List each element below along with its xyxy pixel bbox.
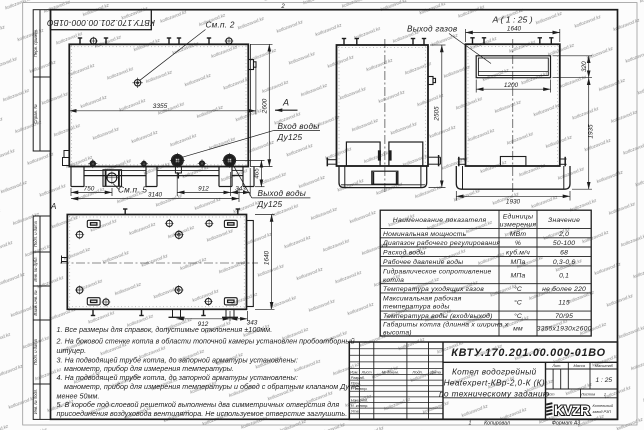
svg-text:KVZR: KVZR <box>554 403 590 418</box>
svg-text:5. В коробе под слоевой решетк: 5. В коробе под слоевой решеткой выполне… <box>57 401 340 409</box>
svg-text:°С: °С <box>514 285 522 293</box>
svg-text:Heatexpert-КВр-2,0-К (К): Heatexpert-КВр-2,0-К (К) <box>444 379 545 388</box>
svg-text:Н. контр.: Н. контр. <box>351 403 369 408</box>
svg-text:Температура воды (вход/выход): Температура воды (вход/выход) <box>383 312 493 320</box>
svg-text:1: 1 <box>604 391 606 396</box>
svg-text:1935: 1935 <box>588 124 595 139</box>
svg-text:2505: 2505 <box>434 106 441 122</box>
svg-text:1930: 1930 <box>506 199 521 206</box>
svg-text:не более 220: не более 220 <box>542 285 586 293</box>
svg-text:4. На подводящей трубе котла,: 4. На подводящей трубе котла, до запорно… <box>57 374 298 382</box>
svg-text:измерения: измерения <box>500 222 537 229</box>
svg-text:Котел водогрейный: Котел водогрейный <box>452 368 537 377</box>
svg-text:0,3-0,6: 0,3-0,6 <box>553 259 576 266</box>
svg-text:70/95: 70/95 <box>555 313 573 320</box>
svg-text:температура воды: температура воды <box>383 303 450 311</box>
svg-text:МПа: МПа <box>511 259 526 266</box>
svg-text:КВТУ.170.201.00.000-01ВО: КВТУ.170.201.00.000-01ВО <box>46 18 155 28</box>
svg-text:См.п. 2: См.п. 2 <box>206 21 235 30</box>
svg-text:манометр, прибор для измерения: манометр, прибор для измерения температу… <box>64 365 234 373</box>
svg-text:Разраб.: Разраб. <box>351 375 365 380</box>
svg-text:Масштаб: Масштаб <box>595 363 614 368</box>
svg-text:2,0: 2,0 <box>558 231 569 238</box>
svg-text:Инв. № подл.: Инв. № подл. <box>33 389 38 414</box>
svg-text:2600: 2600 <box>262 98 269 114</box>
svg-text:манометр, прибор для измерения: манометр, прибор для измерения температу… <box>64 383 359 391</box>
svg-text:Температура уходящих газов: Температура уходящих газов <box>383 285 484 293</box>
svg-text:Подп. и дата: Подп. и дата <box>33 220 38 246</box>
svg-text:Расход воды: Расход воды <box>383 248 425 256</box>
svg-text:0,1: 0,1 <box>559 273 569 280</box>
svg-text:Выход газов: Выход газов <box>407 25 458 34</box>
svg-text:Габариты котла (длинна х ширин: Габариты котла (длинна х ширина х <box>383 321 509 329</box>
svg-text:%: % <box>515 240 521 247</box>
svg-text:Котельный: Котельный <box>593 404 615 408</box>
svg-text:Справ. №: Справ. № <box>33 104 38 124</box>
svg-text:68: 68 <box>560 249 568 256</box>
svg-text:1640: 1640 <box>507 26 522 33</box>
svg-text:Перв. примен.: Перв. примен. <box>33 29 38 58</box>
svg-text:котла: котла <box>383 277 404 284</box>
svg-text:менее 50мм.: менее 50мм. <box>57 392 100 400</box>
svg-text:МВт: МВт <box>510 231 527 238</box>
svg-text:А: А <box>282 98 289 108</box>
svg-text:Взам. инв. №: Взам. инв. № <box>33 290 38 316</box>
svg-text:Копировал: Копировал <box>484 421 510 427</box>
svg-text:1. Все размеры для справок, до: 1. Все размеры для справок, допустимые о… <box>57 326 273 334</box>
svg-text:присоединения воздуховода вент: присоединения воздуховода вентилятора. Н… <box>57 410 348 418</box>
svg-text:2: 2 <box>280 4 285 10</box>
svg-text:Утв.: Утв. <box>351 409 360 414</box>
svg-text:Ду125: Ду125 <box>257 200 283 209</box>
svg-text:завод РЗП: завод РЗП <box>592 410 612 414</box>
svg-text:Диапазон рабочего регулировани: Диапазон рабочего регулирования <box>382 239 500 247</box>
svg-text:°С: °С <box>514 312 522 320</box>
svg-text:Формат А3: Формат А3 <box>552 421 580 427</box>
svg-text:°С: °С <box>514 299 522 307</box>
svg-text:Листов: Листов <box>580 391 595 396</box>
svg-text:Ду125: Ду125 <box>277 133 303 142</box>
svg-text:мм: мм <box>513 326 523 333</box>
svg-text:высота): высота) <box>383 330 412 337</box>
svg-text:3. На подводящей трубе котла,: 3. На подводящей трубе котла, до запорно… <box>57 357 298 365</box>
svg-text:Номинальная мощность: Номинальная мощность <box>383 231 467 238</box>
svg-text:Лист: Лист <box>543 391 555 396</box>
svg-text:А ( 1 : 25 ): А ( 1 : 25 ) <box>491 15 532 25</box>
svg-text:465: 465 <box>253 168 260 179</box>
svg-text:Изм.: Изм. <box>350 369 358 374</box>
svg-text:3140: 3140 <box>148 191 163 198</box>
svg-text:по техническому заданию: по техническому заданию <box>439 390 549 399</box>
svg-text:Масса: Масса <box>573 363 585 368</box>
svg-text:Наименование показателя: Наименование показателя <box>393 217 487 224</box>
svg-text:2. На боковой стенке котла в о: 2. На боковой стенке котла в области топ… <box>56 338 355 346</box>
svg-text:Подп.: Подп. <box>413 369 423 374</box>
svg-text:750: 750 <box>84 185 95 192</box>
svg-text:Выход воды: Выход воды <box>258 189 307 198</box>
svg-text:912: 912 <box>198 185 209 192</box>
svg-text:Инв. № дубл.: Инв. № дубл. <box>33 256 38 281</box>
svg-text:1640: 1640 <box>263 250 270 265</box>
svg-text:Нач. отд.: Нач. отд. <box>351 397 368 402</box>
svg-text:КВТУ.170.201.00.000-01ВО: КВТУ.170.201.00.000-01ВО <box>451 347 605 359</box>
svg-text:1: 1 <box>469 421 472 427</box>
svg-text:115: 115 <box>558 300 569 307</box>
svg-text:Значение: Значение <box>548 217 580 224</box>
svg-text:Гидравлическое сопротивление: Гидравлическое сопротивление <box>383 267 491 275</box>
svg-text:Дата: Дата <box>430 369 442 374</box>
svg-text:3355: 3355 <box>153 103 168 110</box>
svg-text:343: 343 <box>235 185 246 192</box>
svg-text:Подп. и дата: Подп. и дата <box>33 338 38 364</box>
svg-text:1 : 25: 1 : 25 <box>596 377 613 384</box>
svg-text:Вход воды: Вход воды <box>278 122 320 131</box>
svg-text:Максимальная рабочая: Максимальная рабочая <box>383 294 462 302</box>
svg-text:1200: 1200 <box>504 82 519 89</box>
svg-text:МПа: МПа <box>511 273 526 280</box>
svg-text:куб.м/ч: куб.м/ч <box>506 248 530 256</box>
svg-text:Единицы: Единицы <box>503 213 534 221</box>
svg-text:№ докум.: № докум. <box>382 369 399 374</box>
svg-text:Лит.: Лит. <box>551 363 561 368</box>
svg-text:Лист: Лист <box>361 369 373 374</box>
svg-text:А: А <box>50 202 56 211</box>
svg-text:320: 320 <box>581 61 588 72</box>
svg-text:Рабочее давление воды: Рабочее давление воды <box>383 258 463 266</box>
svg-text:3355х1930х2600: 3355х1930х2600 <box>537 326 592 333</box>
svg-text:50-100: 50-100 <box>553 240 575 247</box>
svg-text:См.п. 5: См.п. 5 <box>118 186 147 195</box>
svg-text:штуцер.: штуцер. <box>57 347 87 355</box>
